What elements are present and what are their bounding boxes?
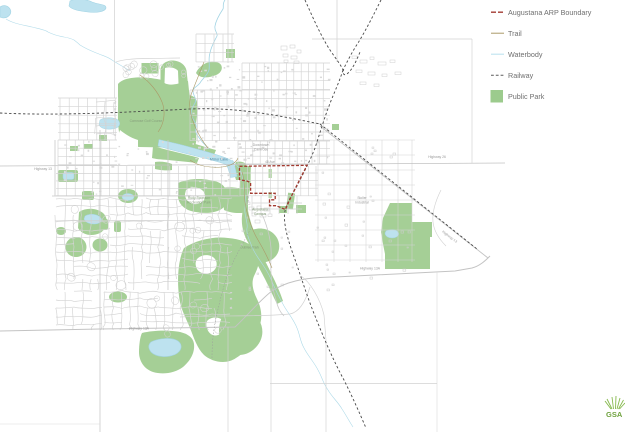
svg-text:Highway 26: Highway 26 (428, 155, 446, 159)
svg-text:Rudy Swanson: Rudy Swanson (188, 196, 210, 200)
svg-text:Industrial: Industrial (355, 200, 369, 204)
svg-text:Jubilee Park: Jubilee Park (241, 246, 259, 250)
svg-text:48 Ave: 48 Ave (265, 160, 275, 164)
svg-text:45 St: 45 St (246, 195, 250, 202)
svg-text:Public Park: Public Park (508, 92, 545, 101)
svg-text:Augustana ARP Boundary: Augustana ARP Boundary (508, 8, 592, 17)
svg-text:Mirror Lake: Mirror Lake (210, 158, 228, 162)
svg-text:Highway 13: Highway 13 (34, 167, 52, 171)
svg-text:Stoller: Stoller (357, 196, 367, 200)
svg-text:Camrose Golf Course: Camrose Golf Course (130, 119, 163, 123)
svg-text:Railway: Railway (508, 71, 534, 80)
svg-text:Waterbody: Waterbody (508, 50, 543, 59)
svg-text:GSA: GSA (606, 410, 623, 419)
svg-text:Camrose: Camrose (254, 148, 269, 152)
svg-text:Highway 13A: Highway 13A (129, 327, 150, 331)
svg-text:Highway 13A: Highway 13A (360, 267, 381, 271)
svg-text:Augustana: Augustana (252, 208, 268, 212)
svg-text:Trail: Trail (508, 29, 522, 38)
svg-text:Recreation Park: Recreation Park (187, 200, 211, 204)
svg-text:Downtown: Downtown (253, 143, 270, 147)
svg-text:Campus: Campus (254, 212, 267, 216)
